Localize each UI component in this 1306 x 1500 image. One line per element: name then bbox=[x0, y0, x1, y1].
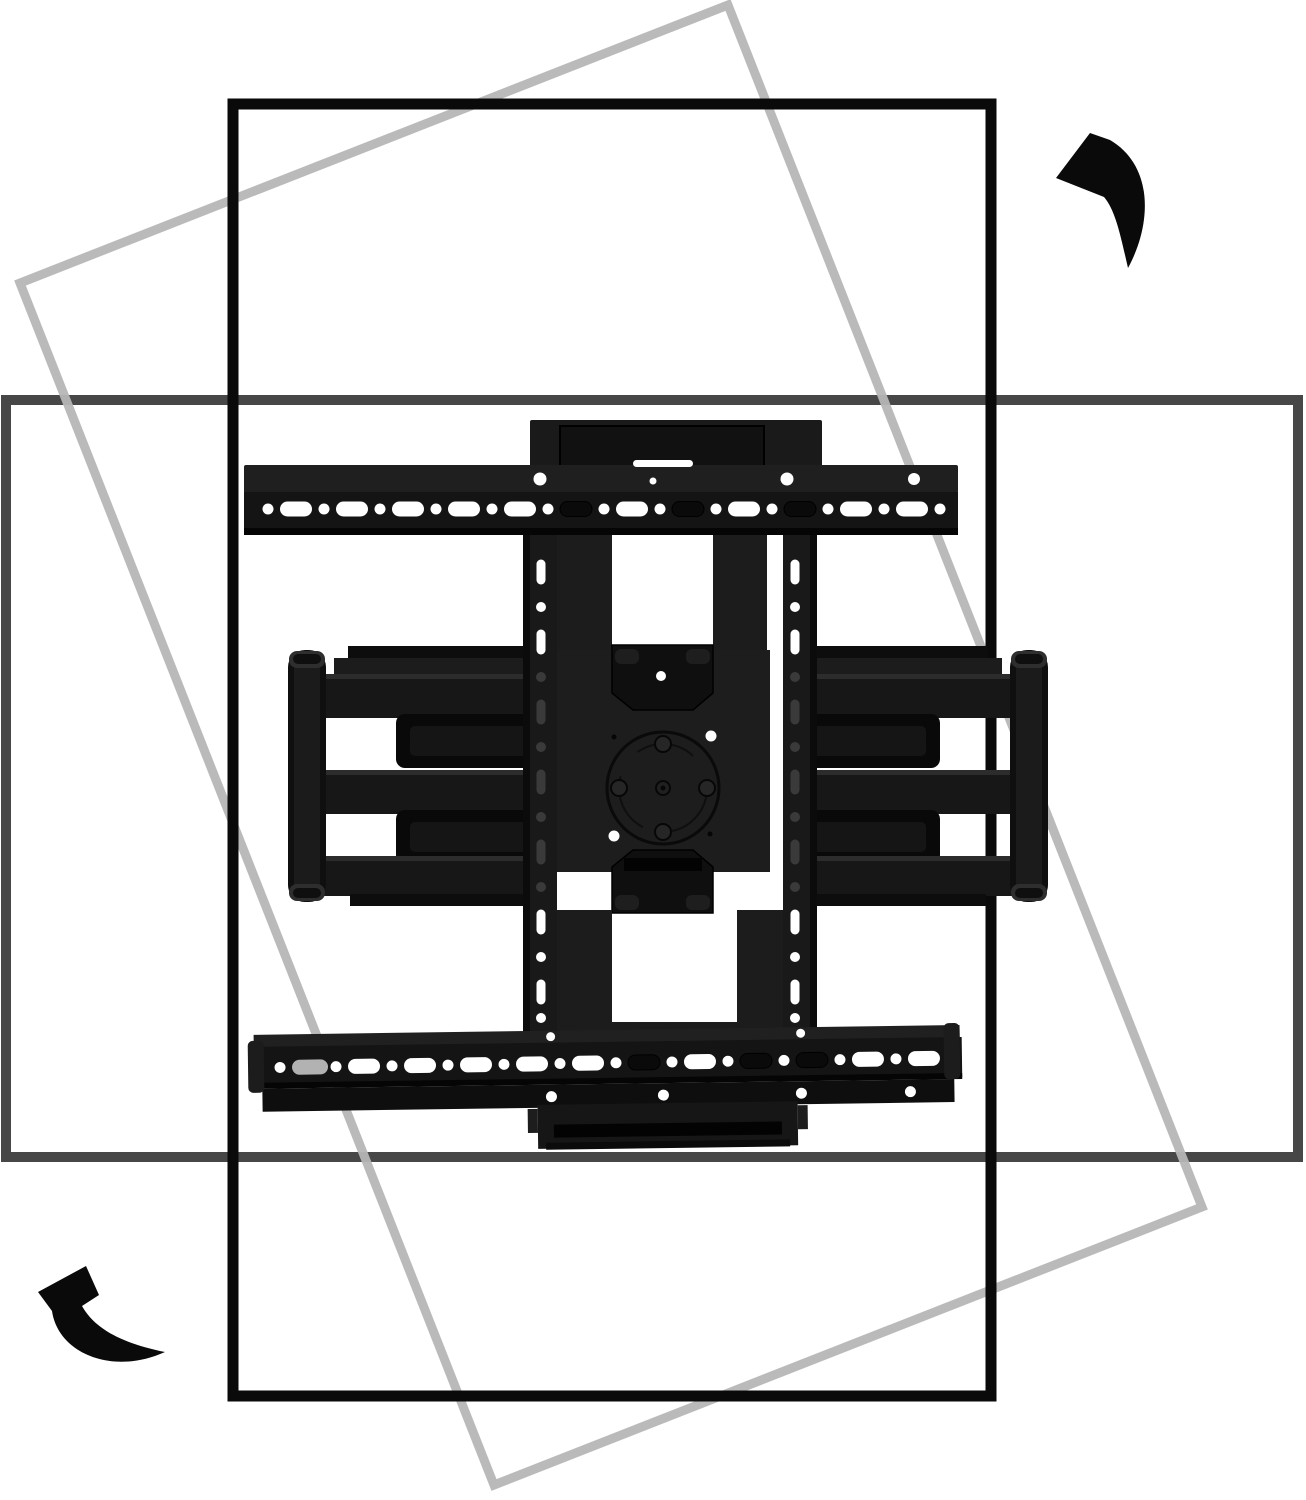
mounting-slot bbox=[504, 502, 536, 517]
slot-hole bbox=[543, 504, 554, 515]
screw-hole bbox=[534, 473, 547, 486]
mounting-slot bbox=[348, 1059, 380, 1074]
hinge-cap-core bbox=[293, 888, 321, 898]
slot-hole bbox=[655, 504, 666, 515]
mounting-slot bbox=[537, 840, 546, 865]
clip-ear bbox=[686, 649, 710, 664]
mounting-slot-dark bbox=[784, 502, 816, 517]
top-tv-bracket-rail bbox=[244, 460, 958, 535]
clip-ear bbox=[615, 895, 639, 910]
screw-hole bbox=[609, 831, 620, 842]
screw-hole bbox=[706, 731, 717, 742]
screw-hole bbox=[536, 742, 546, 752]
slot-hole bbox=[879, 504, 890, 515]
slot-hole bbox=[431, 504, 442, 515]
center-swivel-plate bbox=[557, 525, 783, 1040]
rotate-arrow-top-right bbox=[1056, 133, 1145, 268]
arm-bar bbox=[318, 770, 544, 814]
screw-hole bbox=[908, 473, 920, 485]
hinge-post-inner bbox=[294, 658, 320, 894]
mounting-slot bbox=[896, 502, 928, 517]
plate-strip bbox=[737, 910, 783, 1040]
clip-ear bbox=[615, 649, 639, 664]
bracket-end-cap bbox=[943, 1023, 960, 1079]
tv-mount bbox=[244, 420, 1048, 1154]
screw-hole bbox=[790, 602, 800, 612]
mounting-slot bbox=[537, 700, 546, 725]
screw-hole bbox=[650, 478, 657, 485]
mounting-slot bbox=[537, 560, 546, 585]
rivet bbox=[708, 832, 713, 837]
mounting-slot-dark bbox=[796, 1052, 828, 1067]
slot-hole bbox=[823, 504, 834, 515]
mounting-slot bbox=[292, 1059, 328, 1075]
mounting-slot-dark bbox=[560, 502, 592, 517]
slot-hole bbox=[263, 504, 274, 515]
screw-hole bbox=[536, 812, 546, 822]
slot-hole bbox=[711, 504, 722, 515]
arm-clamp-inner bbox=[410, 726, 532, 756]
mounting-slot bbox=[404, 1058, 436, 1073]
handle-slot bbox=[633, 460, 693, 467]
mounting-slot bbox=[791, 910, 800, 935]
mounting-slot-dark bbox=[740, 1053, 772, 1068]
mounting-slot bbox=[791, 770, 800, 795]
arm-shelf bbox=[348, 646, 544, 658]
mounting-slot-dark bbox=[672, 502, 704, 517]
bracket-tab bbox=[798, 1105, 808, 1129]
mounting-slot bbox=[336, 502, 368, 517]
screw-hole bbox=[790, 952, 800, 962]
arm-clamp-inner bbox=[410, 822, 532, 852]
mounting-slot bbox=[537, 980, 546, 1005]
rail-edge bbox=[810, 465, 817, 1040]
swivel-center-dot bbox=[661, 786, 666, 791]
screw-hole bbox=[790, 742, 800, 752]
arm-bar-highlight bbox=[318, 856, 544, 861]
screw-hole bbox=[790, 882, 800, 892]
clip-texture bbox=[624, 858, 702, 871]
slot-hole bbox=[375, 504, 386, 515]
hinge-cap-core bbox=[293, 654, 321, 664]
mounting-slot bbox=[791, 980, 800, 1005]
arm-bar-highlight bbox=[318, 770, 544, 775]
clip-ear bbox=[686, 895, 710, 910]
swivel-bolt bbox=[655, 736, 671, 752]
screw-hole bbox=[536, 882, 546, 892]
arm-bar bbox=[318, 674, 544, 718]
screw-hole bbox=[790, 812, 800, 822]
arm-bar-highlight bbox=[318, 674, 544, 679]
bracket-end-cap bbox=[248, 1041, 265, 1093]
mounting-slot bbox=[537, 630, 546, 655]
mounting-slot bbox=[392, 502, 424, 517]
mounting-slot bbox=[791, 560, 800, 585]
arm-bar bbox=[318, 856, 544, 896]
articulating-arm-right bbox=[792, 646, 1048, 906]
screw-hole bbox=[656, 671, 666, 681]
mounting-slot bbox=[840, 502, 872, 517]
plate-strip bbox=[713, 525, 767, 655]
screw-hole bbox=[536, 672, 546, 682]
arm-shelf bbox=[350, 894, 544, 906]
rivet bbox=[612, 735, 617, 740]
swivel-bolt bbox=[611, 780, 627, 796]
mounting-slot bbox=[728, 502, 760, 517]
mounting-slot bbox=[616, 502, 648, 517]
mounting-slot-dark bbox=[628, 1055, 660, 1070]
swivel-bolt bbox=[699, 780, 715, 796]
mounting-slot bbox=[537, 770, 546, 795]
bracket-bottom-lip bbox=[244, 528, 958, 535]
vesa-rail-left bbox=[523, 465, 557, 1040]
wall-plate-top-stub bbox=[530, 420, 822, 467]
screw-hole bbox=[790, 1013, 800, 1023]
mounting-slot bbox=[460, 1057, 492, 1072]
mounting-slot bbox=[908, 1051, 940, 1066]
mounting-slot bbox=[791, 700, 800, 725]
product-illustration bbox=[0, 0, 1306, 1500]
mounting-slot bbox=[280, 502, 312, 517]
screw-hole bbox=[790, 672, 800, 682]
mounting-slot bbox=[516, 1056, 548, 1071]
mounting-slot bbox=[791, 630, 800, 655]
bracket-top-lip bbox=[244, 465, 958, 493]
mounting-slot bbox=[852, 1052, 884, 1067]
slot-hole bbox=[599, 504, 610, 515]
slot-hole bbox=[767, 504, 778, 515]
vesa-rail-right bbox=[783, 465, 817, 1040]
mounting-slot bbox=[572, 1055, 604, 1070]
mounting-slot bbox=[684, 1054, 716, 1069]
screw-hole bbox=[536, 602, 546, 612]
arm-shelf bbox=[334, 658, 544, 674]
mounting-slot bbox=[448, 502, 480, 517]
mounting-slot bbox=[537, 910, 546, 935]
screw-hole bbox=[536, 952, 546, 962]
rail-edge bbox=[523, 465, 530, 1040]
screw-hole bbox=[536, 1013, 546, 1023]
screw-hole bbox=[781, 473, 794, 486]
plate-strip bbox=[557, 525, 612, 655]
mounting-slot bbox=[791, 840, 800, 865]
slot-hole bbox=[935, 504, 946, 515]
slot-hole bbox=[487, 504, 498, 515]
slot-hole bbox=[319, 504, 330, 515]
articulating-arm-left bbox=[288, 646, 544, 906]
plate-strip bbox=[557, 910, 612, 1040]
rotate-arrow-bottom-left bbox=[38, 1266, 165, 1362]
swivel-bolt bbox=[655, 824, 671, 840]
bracket-tab bbox=[528, 1109, 538, 1133]
